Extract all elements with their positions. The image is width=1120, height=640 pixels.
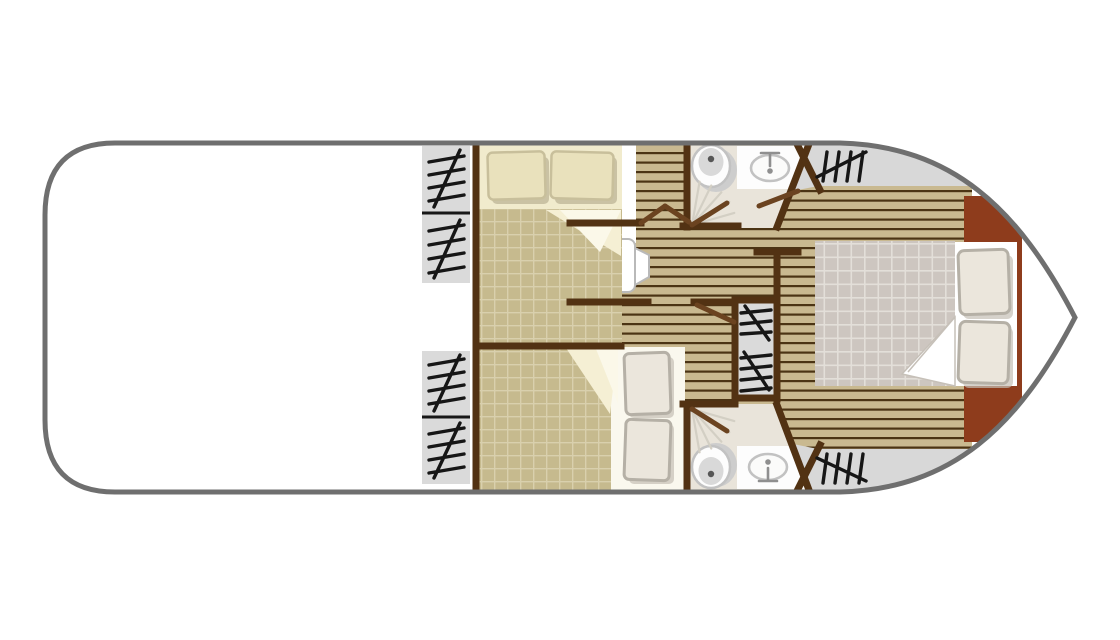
washbasin-icon (751, 153, 789, 181)
pillows (487, 151, 617, 204)
floor-plan-drawing (0, 0, 1120, 640)
washbasin-icon (749, 454, 787, 481)
boat-floor-plan-page (0, 0, 1120, 640)
pillow (624, 419, 671, 481)
port-cabin (479, 144, 622, 347)
pillow (958, 321, 1010, 384)
pillow (550, 151, 613, 200)
pillow (958, 249, 1010, 315)
starboard-cabin (479, 347, 685, 490)
pillow (487, 151, 545, 199)
stairs-area (737, 302, 775, 396)
companionway-stairs (737, 302, 775, 396)
pillow (624, 352, 671, 415)
